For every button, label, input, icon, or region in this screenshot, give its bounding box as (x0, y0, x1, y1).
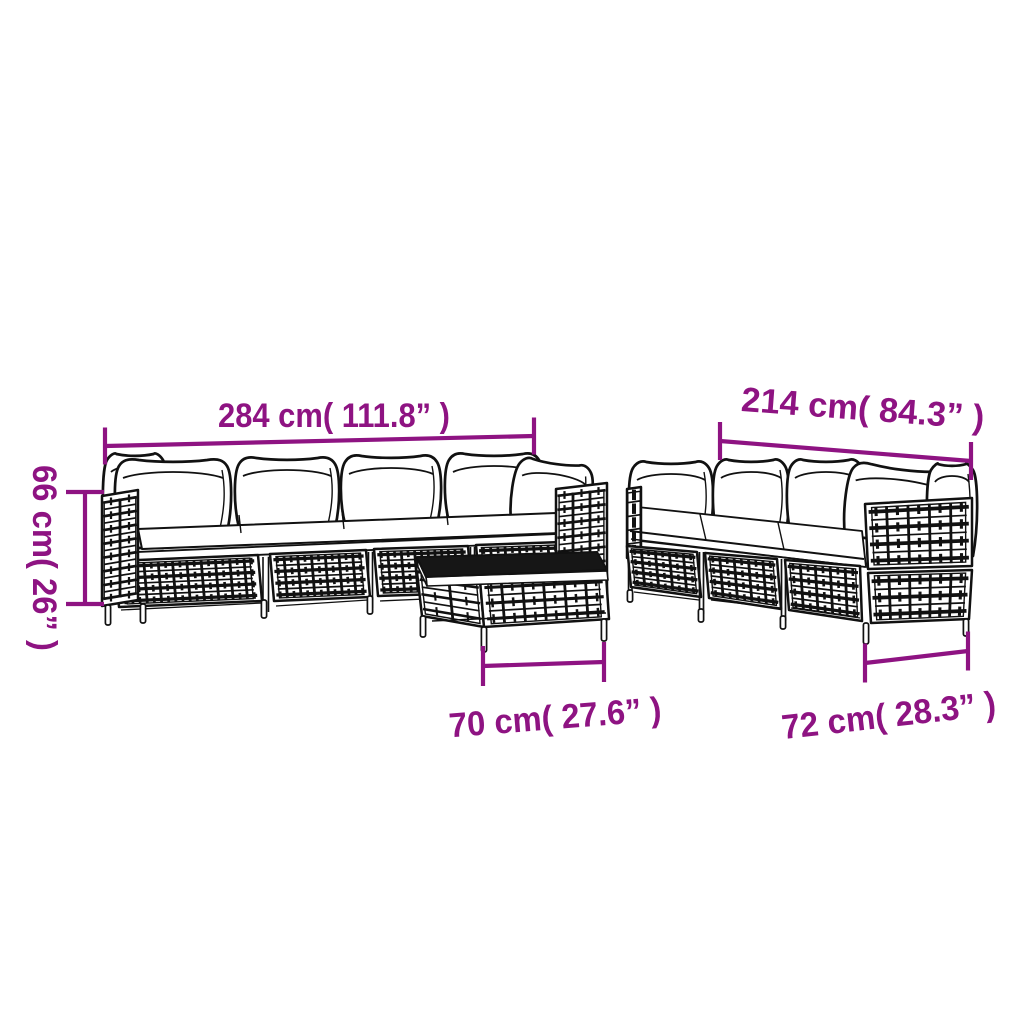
svg-text:70 cm( 27.6” ): 70 cm( 27.6” ) (447, 691, 662, 746)
svg-text:72 cm( 28.3” ): 72 cm( 28.3” ) (780, 684, 998, 747)
svg-text:214 cm( 84.3” ): 214 cm( 84.3” ) (740, 381, 986, 437)
svg-text:284 cm( 111.8” ): 284 cm( 111.8” ) (218, 395, 450, 434)
svg-text:66 cm( 26” ): 66 cm( 26” ) (25, 465, 63, 651)
